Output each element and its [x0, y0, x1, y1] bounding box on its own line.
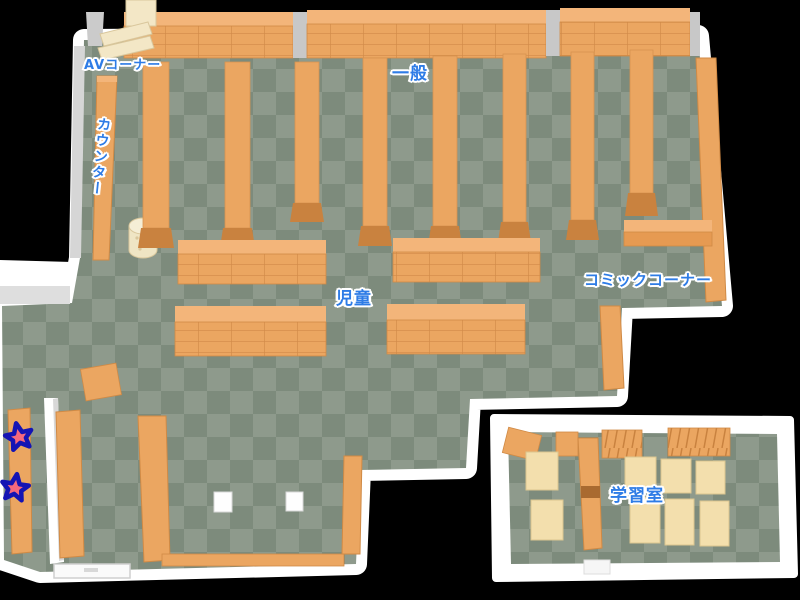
children-shelf — [387, 304, 525, 354]
bottom-wall-shelf — [162, 554, 344, 566]
study-desk — [665, 499, 694, 545]
study-shelf — [556, 432, 578, 456]
aisle-shelf — [138, 62, 174, 248]
bookshelf-top — [560, 8, 690, 22]
bookshelf-top — [307, 10, 546, 24]
label-general: 一般 — [392, 59, 428, 84]
wall-pillar — [546, 10, 560, 56]
av-corner-pillar — [86, 12, 104, 46]
study-desk — [696, 461, 725, 494]
aisle-shelf — [428, 56, 462, 246]
label-children: 児童 — [336, 284, 372, 309]
children-shelf — [393, 238, 540, 282]
children-shelf — [178, 240, 326, 284]
aisle-shelf — [625, 50, 658, 216]
entrance-shelf — [138, 416, 170, 562]
wall-pillar — [690, 12, 700, 56]
study-shelf-hatched — [668, 428, 730, 456]
step-shelf — [600, 306, 624, 390]
aisle-shelf — [566, 52, 599, 240]
top-wall-bookshelves — [124, 8, 700, 58]
label-comic-corner: コミックコーナー — [584, 269, 712, 290]
label-study-room: 学習室 — [610, 481, 664, 506]
comic-shelf-front — [624, 232, 712, 246]
entrance-shelf — [56, 410, 84, 558]
aisle-shelf — [220, 62, 255, 248]
study-desk — [526, 452, 558, 490]
small-table — [286, 492, 303, 511]
children-shelf — [175, 306, 326, 356]
study-room-door — [584, 560, 610, 574]
entrance-door — [54, 564, 130, 578]
library-floor-map: AVコーナー 一般 カウンター 児童 コミックコーナー 学習室 — [0, 0, 800, 600]
small-table — [214, 492, 232, 512]
aisle-shelf — [290, 62, 324, 222]
lobby-corner-wall — [0, 260, 72, 304]
study-desk — [661, 459, 691, 493]
floor-map-canvas — [0, 0, 800, 600]
comic-shelf-top — [624, 220, 712, 232]
aisle-shelf — [498, 54, 531, 242]
floor-mat — [80, 363, 121, 401]
study-shelf-hatched — [602, 430, 642, 458]
wall-pillar — [293, 12, 307, 58]
label-av-corner: AVコーナー — [84, 54, 161, 73]
edge-shelf — [342, 456, 362, 554]
study-desk — [531, 500, 563, 540]
study-desk — [700, 501, 729, 546]
bookshelf-grid — [307, 24, 546, 58]
aisle-shelf — [358, 58, 392, 246]
av-shelf — [126, 0, 156, 26]
bookshelf-grid — [560, 22, 690, 56]
